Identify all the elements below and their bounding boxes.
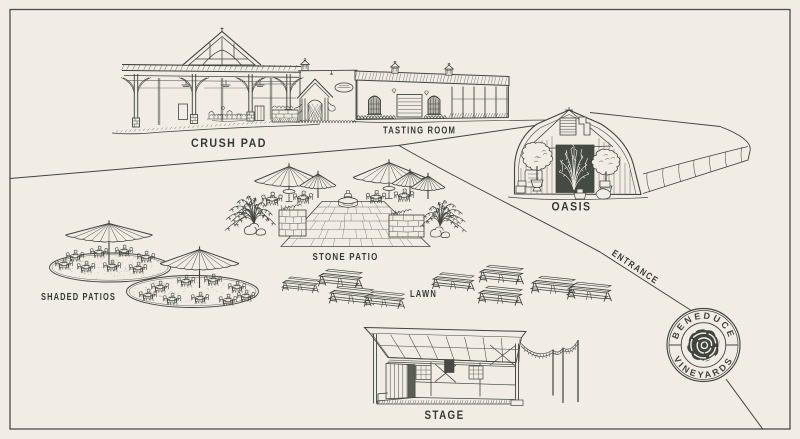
svg-text:SHADED PATIOS: SHADED PATIOS [41,291,116,303]
svg-text:STONE PATIO: STONE PATIO [313,251,379,263]
svg-text:OASIS: OASIS [552,202,592,214]
svg-text:TASTING ROOM: TASTING ROOM [383,125,456,137]
svg-text:CRUSH PAD: CRUSH PAD [191,138,267,150]
svg-text:LAWN: LAWN [410,288,437,300]
svg-text:STAGE: STAGE [425,410,465,422]
